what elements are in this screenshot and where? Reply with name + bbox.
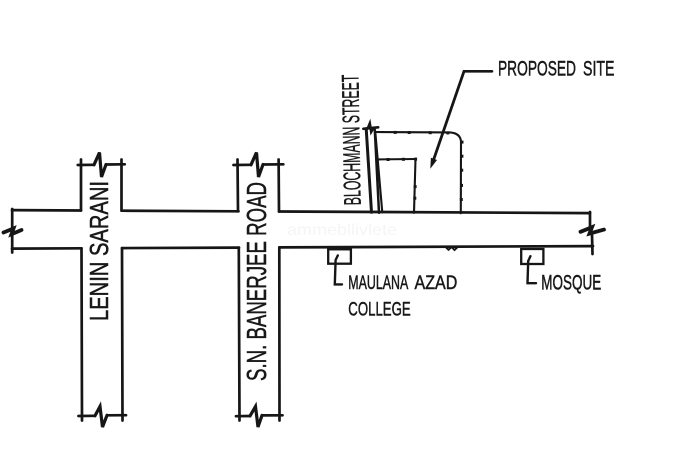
- svg-text:ammebllivlete: ammebllivlete: [287, 222, 397, 239]
- svg-text:LENIN SARANI: LENIN SARANI: [84, 181, 114, 321]
- svg-text:SITE: SITE: [583, 57, 615, 81]
- svg-text:S.N. BANERJEE ROAD: S.N. BANERJEE ROAD: [241, 182, 272, 381]
- svg-text:PROPOSED: PROPOSED: [498, 57, 576, 81]
- svg-text:COLLEGE: COLLEGE: [348, 299, 410, 321]
- svg-text:MAULANA: MAULANA: [348, 272, 408, 294]
- svg-text:BLOCHMANN STREET: BLOCHMANN STREET: [337, 74, 366, 205]
- svg-text:AZAD: AZAD: [415, 272, 458, 294]
- svg-text:MOSQUE: MOSQUE: [541, 272, 601, 295]
